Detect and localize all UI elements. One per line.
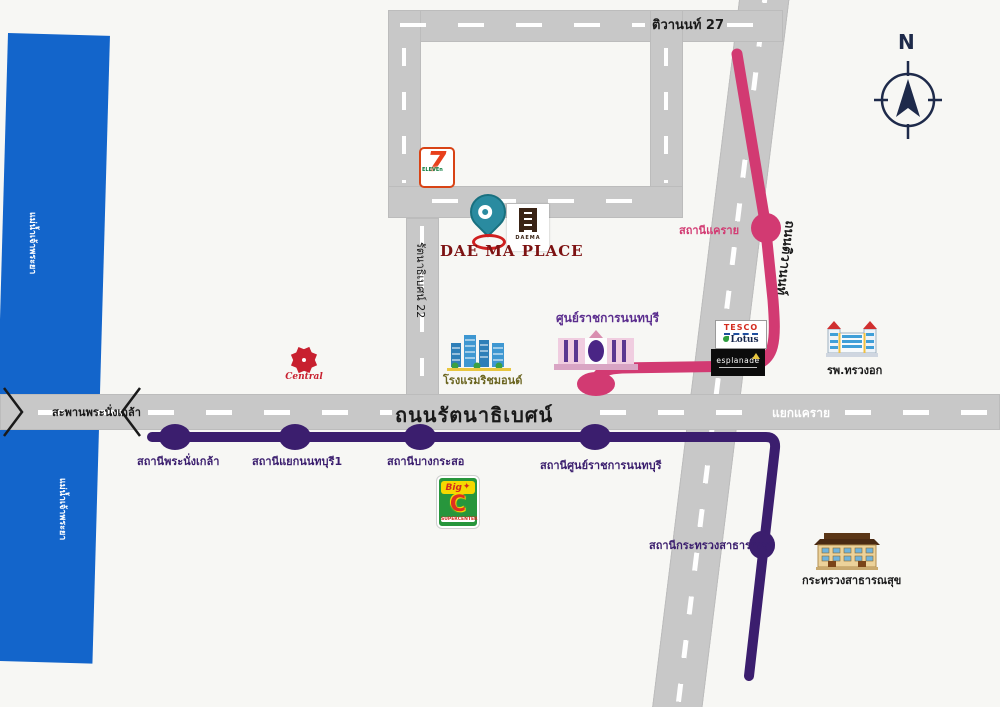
bigc-star-icon: ✦ (463, 483, 471, 492)
daema-logo-text: DAEMA (515, 235, 540, 241)
gov-center-icon (554, 330, 638, 372)
station-label-civic-center: สถานีศูนย์ราชการนนทบุรี (540, 456, 662, 474)
soi22-label: รัตนาธิเบศน์ 22 (412, 242, 430, 318)
central-logo: Central (284, 350, 324, 382)
bridge-label: สะพานพระนั่งเกล้า (52, 403, 141, 421)
tesco-text: TESCO (724, 324, 758, 335)
bigc-big-text: Big (446, 483, 462, 493)
lane-dashes (845, 410, 995, 415)
moph-label: กระทรวงสาธารณสุข (802, 571, 901, 589)
chest-hospital-label: รพ.ทรวงอก (827, 361, 882, 379)
river-label-lower: แม่น้ำเจ้าพระยา (56, 478, 70, 540)
seven-eleven-7: 7 (427, 145, 446, 178)
seven-eleven-text: ELEVEn (422, 167, 443, 173)
esplanade-underline (719, 367, 757, 368)
lane-dashes (148, 410, 392, 415)
daema-title: DAE MA PLACE (440, 242, 584, 260)
richmond-hotel-label: โรงแรมริชมอนด์ (443, 371, 522, 389)
lotus-text: Lotus (723, 336, 758, 345)
station-label-yaek-nonthaburi1: สถานีแยกนนทบุรี1 (252, 452, 342, 470)
esplanade-logo: esplanade (711, 349, 765, 376)
lotus-word: Lotus (730, 335, 758, 345)
compass-icon (872, 55, 944, 147)
seven-eleven-logo: 7 ELEVEn (419, 147, 455, 188)
tesco-lotus-logo: TESCO Lotus (715, 320, 767, 349)
lane-dashes (664, 48, 668, 183)
bigc-sub-text: SUPERCENTER (441, 517, 475, 522)
central-star-icon (291, 347, 317, 373)
chest-hospital-icon (826, 319, 878, 359)
lane-dashes (600, 410, 762, 415)
main-road-label: ถนนรัตนาธิเบศน์ (395, 399, 553, 431)
lane-dashes (402, 48, 406, 183)
moph-building-icon (814, 529, 880, 571)
gov-center-label: ศูนย์ราชการนนทบุรี (556, 309, 659, 328)
station-label-bang-krasor: สถานีบางกระสอ (387, 452, 464, 470)
station-label-khaerai: สถานีแคราย (679, 221, 739, 239)
lane-dashes (432, 199, 644, 203)
location-map: แม่น้ำเจ้าพระยา แม่น้ำเจ้าพระยา ถนนรัตนา… (0, 0, 1000, 707)
richmond-hotel-icon (447, 331, 517, 371)
central-text: Central (284, 372, 324, 382)
bigc-logo: Big ✦ C SUPERCENTER (437, 476, 479, 528)
river-label-upper: แม่น้ำเจ้าพระยา (26, 212, 40, 274)
lotus-leaf-icon (723, 336, 729, 342)
tiwanon27-label: ติวานนท์ 27 (652, 14, 724, 35)
esplanade-accent-icon (752, 353, 760, 359)
bigc-c-text: C (450, 494, 466, 516)
lane-dashes (400, 23, 645, 27)
chao-phraya-river (0, 33, 110, 664)
station-label-moph: สถานีกระทรวงสาธารณสุข (649, 536, 775, 554)
compass-north-label: N (898, 30, 915, 54)
station-label-phra-nangklao: สถานีพระนั่งเกล้า (137, 452, 219, 470)
pink-terminus-marker (577, 372, 615, 396)
lane-dashes (727, 23, 771, 27)
tiwanon-road-label: ถนนติวานนท์ (771, 219, 801, 296)
daema-logo-mark (519, 208, 537, 232)
khaerai-intersection-label: แยกแคราย (772, 404, 830, 423)
